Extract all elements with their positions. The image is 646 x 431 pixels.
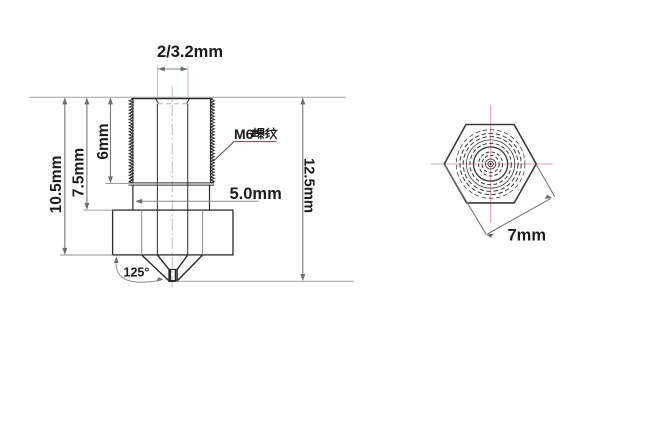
svg-text:7mm: 7mm — [508, 226, 547, 244]
svg-text:125°: 125° — [124, 266, 150, 280]
svg-text:12.5mm: 12.5mm — [301, 158, 317, 213]
svg-text:6mm: 6mm — [95, 123, 112, 159]
svg-text:M6: M6 — [234, 126, 254, 142]
svg-text:2/3.2mm: 2/3.2mm — [157, 43, 223, 61]
svg-text:7.5mm: 7.5mm — [71, 148, 88, 197]
svg-text:5.0mm: 5.0mm — [230, 185, 282, 203]
svg-text:10.5mm: 10.5mm — [48, 156, 65, 214]
